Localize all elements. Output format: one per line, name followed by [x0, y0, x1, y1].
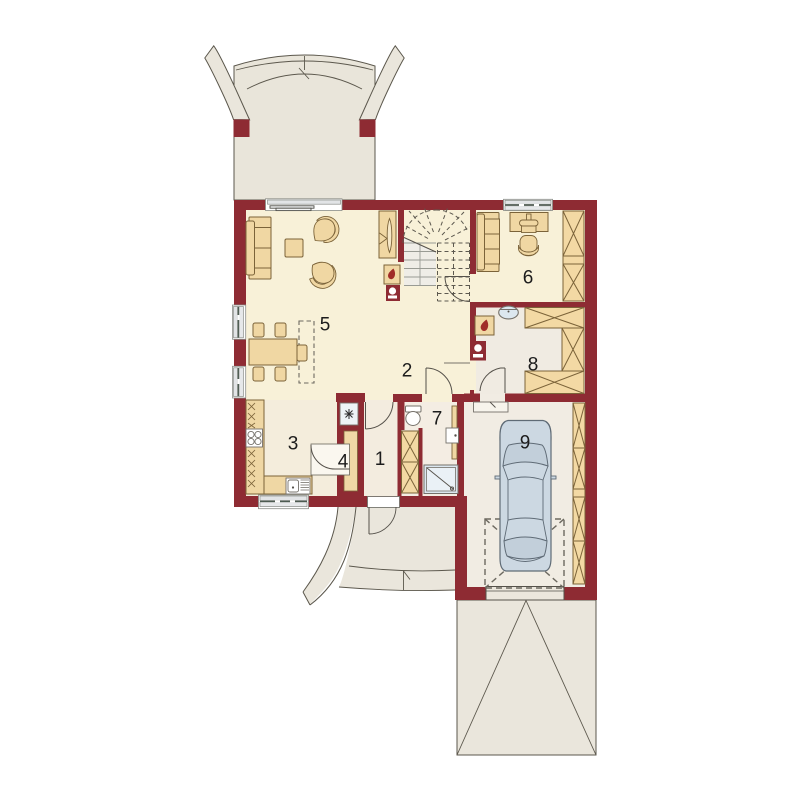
svg-text:5: 5	[320, 315, 331, 336]
svg-text:2: 2	[402, 361, 413, 382]
svg-text:9: 9	[520, 433, 531, 454]
svg-text:4: 4	[338, 452, 349, 473]
svg-text:7: 7	[432, 409, 443, 430]
svg-text:6: 6	[523, 268, 534, 289]
svg-text:3: 3	[288, 434, 299, 455]
svg-text:1: 1	[375, 449, 386, 470]
svg-text:8: 8	[528, 355, 539, 376]
